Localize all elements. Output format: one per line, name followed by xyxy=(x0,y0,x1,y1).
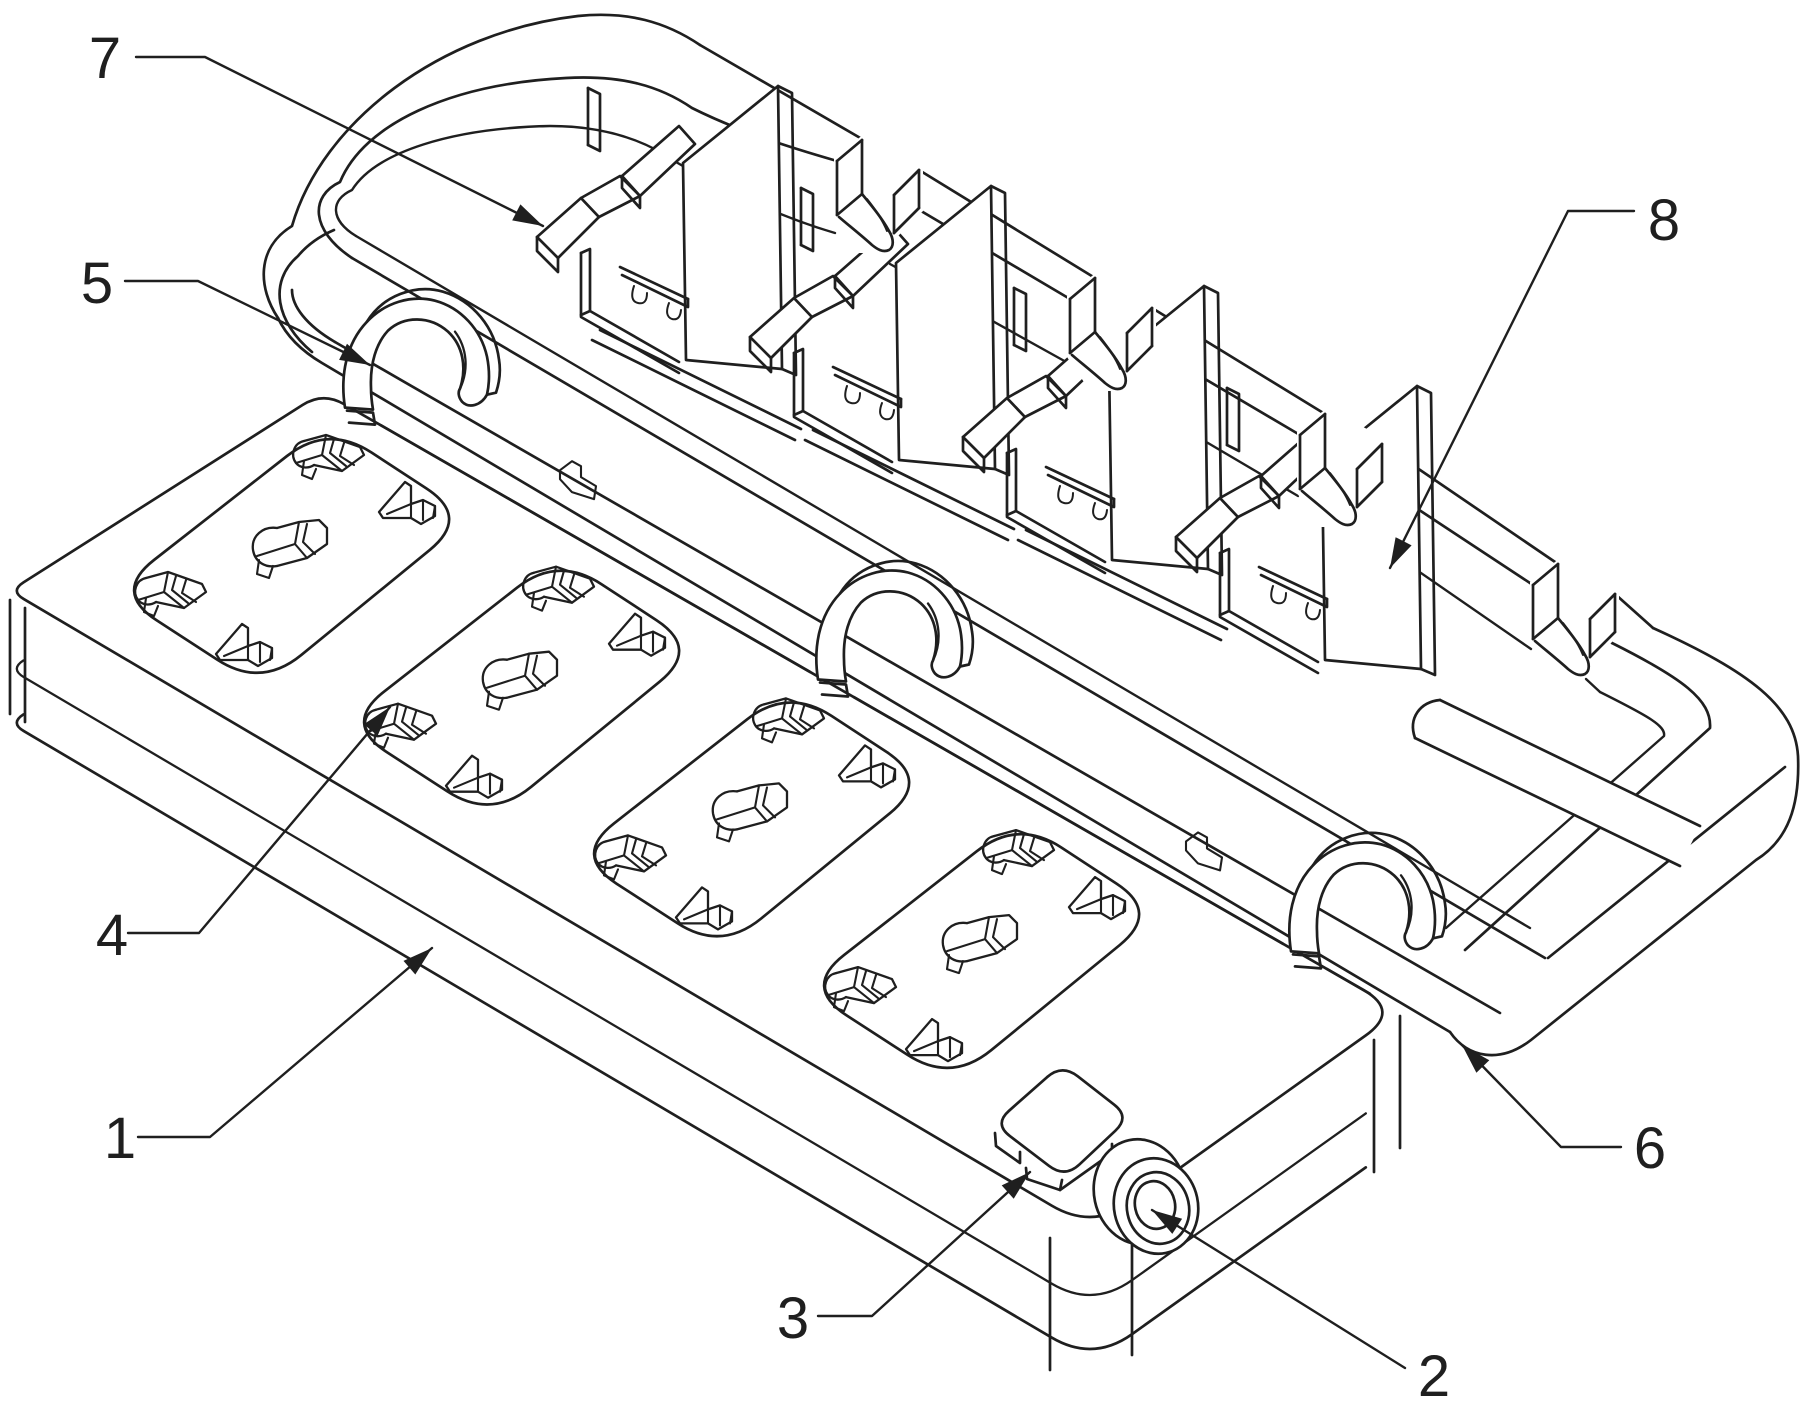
svg-text:6: 6 xyxy=(1634,1116,1666,1181)
svg-text:3: 3 xyxy=(777,1286,809,1351)
svg-text:1: 1 xyxy=(104,1106,136,1171)
svg-text:8: 8 xyxy=(1648,188,1680,253)
svg-text:5: 5 xyxy=(81,251,113,316)
svg-text:2: 2 xyxy=(1418,1344,1450,1404)
svg-text:7: 7 xyxy=(89,26,121,91)
svg-text:4: 4 xyxy=(96,903,128,968)
